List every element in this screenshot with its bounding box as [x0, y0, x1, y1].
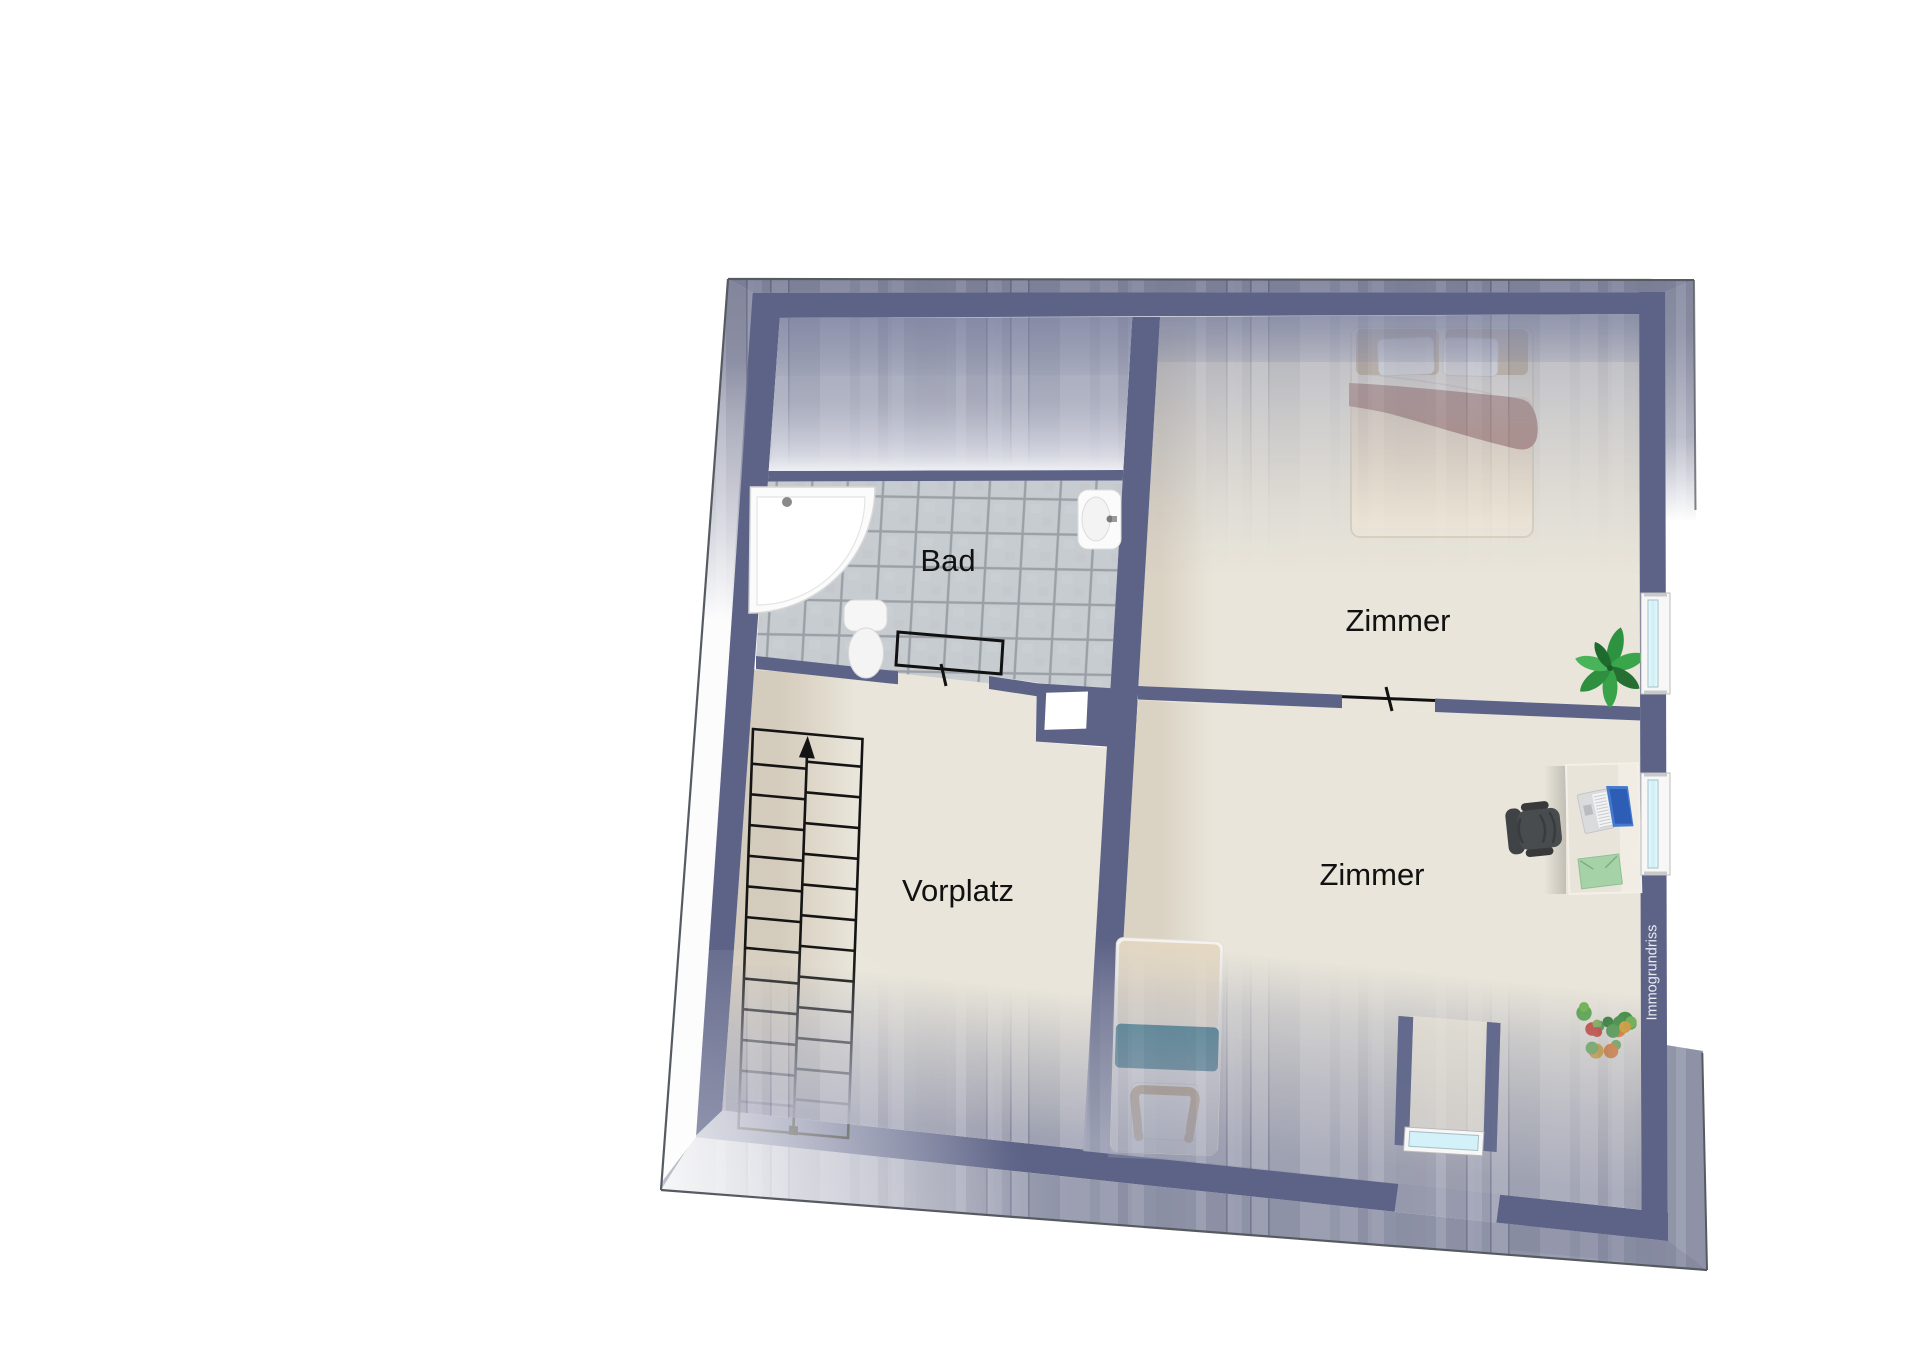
svg-text:Vorplatz: Vorplatz — [902, 873, 1014, 908]
svg-text:Zimmer: Zimmer — [1319, 857, 1424, 892]
svg-text:Bad: Bad — [920, 543, 975, 578]
svg-text:Zimmer: Zimmer — [1345, 603, 1450, 638]
svg-text:Immogrundriss: Immogrundriss — [1645, 925, 1661, 1021]
